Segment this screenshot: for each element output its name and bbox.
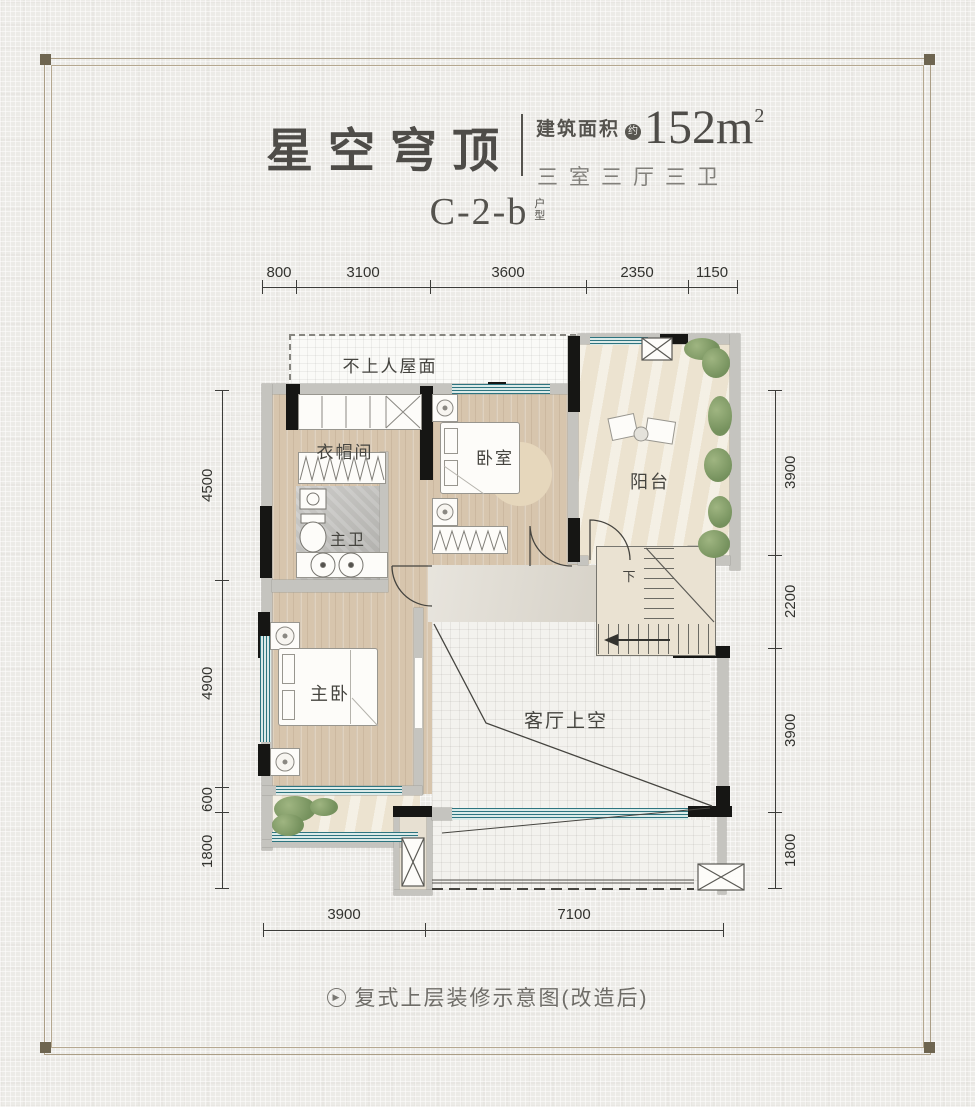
room-label-roof: 不上人屋面 — [305, 352, 475, 377]
closet-detail — [322, 396, 420, 428]
wardrobe-hatch — [434, 531, 506, 550]
balcony-cushions — [608, 414, 676, 445]
bed-fold — [352, 466, 484, 726]
stair-diagonal — [646, 548, 714, 622]
room-label-living-void: 客厅上空 — [518, 706, 614, 733]
room-label-balcony: 阳台 — [615, 468, 685, 494]
lower-strip-line — [442, 808, 710, 833]
room-label-cloakroom: 衣帽间 — [300, 438, 390, 463]
door-arcs — [392, 520, 630, 606]
room-label-bedroom: 卧室 — [455, 444, 535, 469]
stairs-down-label: 下 — [618, 566, 642, 585]
x-box — [402, 338, 744, 890]
lower-window-lines — [432, 880, 694, 883]
plan-lineart — [0, 0, 975, 1107]
room-label-master-bath: 主卫 — [318, 526, 378, 550]
room-label-master-bedroom: 主卧 — [295, 680, 365, 706]
stair-arrow-head — [604, 634, 618, 646]
